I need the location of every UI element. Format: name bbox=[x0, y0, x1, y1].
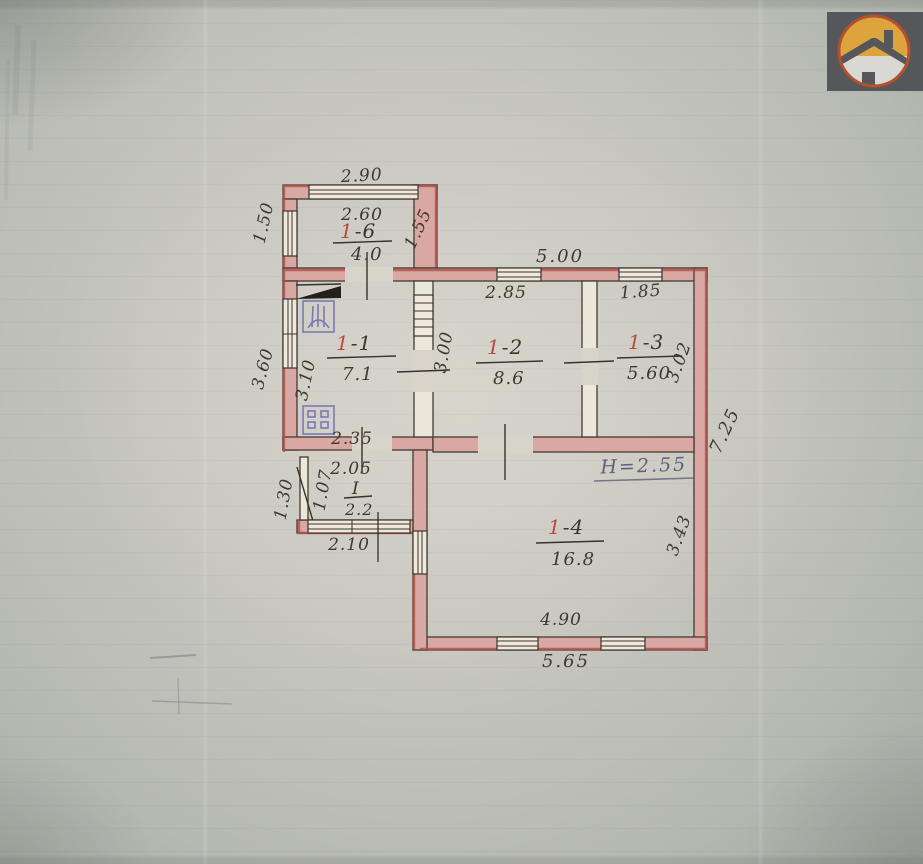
fraction-line bbox=[536, 541, 604, 543]
dim-r12-top: 2.85 bbox=[484, 283, 527, 303]
height-note-text: H=2.55 bbox=[599, 453, 688, 478]
dim-right-out: 7.25 bbox=[705, 404, 744, 456]
dim-hall-left-in: 1.07 bbox=[310, 468, 337, 513]
room-1-1-label: 1-1 bbox=[336, 331, 372, 355]
room13-top-window bbox=[619, 268, 662, 281]
dimension-labels: 2.90 2.60 1.50 1.55 5.00 2.85 1.85 3.00 … bbox=[248, 165, 745, 672]
vent-line bbox=[296, 284, 341, 285]
vent-wedge-icon bbox=[296, 286, 341, 299]
room14-bottom-window-1 bbox=[497, 637, 538, 650]
windows bbox=[283, 185, 662, 650]
dim-hall-left-out: 1.30 bbox=[271, 477, 298, 522]
red-wall-edging bbox=[284, 186, 706, 649]
door-gap-12-13 bbox=[581, 348, 598, 385]
dim-r13-right: 3.02 bbox=[663, 339, 696, 385]
bleed-marks bbox=[6, 25, 232, 714]
room14-left-window bbox=[413, 531, 427, 574]
door-leaf-12-13 bbox=[564, 361, 614, 363]
cooker-icon bbox=[303, 406, 334, 434]
dim-r13-top: 1.85 bbox=[619, 281, 662, 304]
dim-porch-top-in: 2.60 bbox=[340, 205, 383, 225]
porch-left-window bbox=[283, 211, 297, 256]
dim-hall-bottom: 2.10 bbox=[327, 535, 370, 555]
room-I-area: 2.2 bbox=[344, 500, 373, 519]
fraction-line bbox=[327, 356, 396, 358]
scanned-floorplan-sheet: 1-6 4.0 1-1 7.1 1-2 8.6 1-3 5.60 1-4 16.… bbox=[0, 0, 923, 864]
dim-top-out: 5.00 bbox=[536, 246, 584, 267]
dim-r14-right: 3.43 bbox=[663, 512, 696, 558]
room-1-2-label: 1-2 bbox=[487, 335, 523, 359]
site-logo bbox=[827, 12, 923, 91]
room-1-4-label: 1-4 bbox=[548, 515, 584, 539]
dim-r14-bottom: 4.90 bbox=[539, 610, 582, 630]
height-note-underline bbox=[594, 478, 694, 481]
room11-left-window bbox=[283, 299, 297, 368]
porch-top-window bbox=[309, 185, 418, 199]
fraction-line bbox=[344, 496, 372, 498]
room12-top-window bbox=[497, 268, 541, 281]
room-1-1-area: 7.1 bbox=[342, 364, 374, 385]
dim-porch-top-out: 2.90 bbox=[339, 165, 383, 187]
door-gap-porch bbox=[345, 267, 393, 282]
dim-r11-bottom: 2.35 bbox=[330, 429, 373, 449]
dim-porch-left: 1.50 bbox=[250, 200, 279, 245]
room-1-4-area: 16.8 bbox=[551, 549, 595, 570]
dim-r11-left-out: 3.60 bbox=[248, 346, 278, 392]
room-1-6-area: 4.0 bbox=[350, 244, 383, 265]
floorplan-drawing: 1-6 4.0 1-1 7.1 1-2 8.6 1-3 5.60 1-4 16.… bbox=[0, 0, 923, 864]
room-I-label: I bbox=[351, 479, 360, 499]
doors bbox=[297, 252, 614, 521]
dim-r12-left: 3.00 bbox=[431, 330, 458, 375]
dim-bottom-out: 5.65 bbox=[542, 651, 590, 672]
rooms-to-room14-wall bbox=[433, 437, 694, 452]
walls bbox=[283, 185, 707, 650]
room-1-2-area: 8.6 bbox=[493, 368, 525, 389]
room-1-3-label: 1-3 bbox=[628, 330, 664, 354]
stove-icon bbox=[303, 301, 334, 332]
fraction-line bbox=[476, 361, 543, 363]
flue-channels bbox=[414, 295, 433, 336]
height-note: H=2.55 bbox=[594, 453, 694, 481]
room14-bottom-window-2 bbox=[601, 637, 645, 650]
